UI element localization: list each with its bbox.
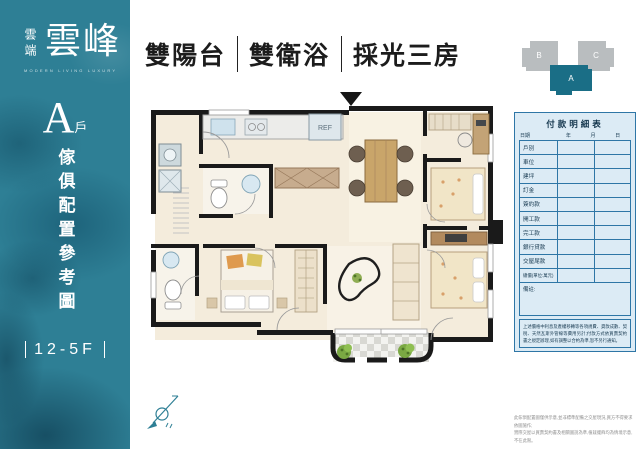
payment-row-label: 銀行貸款	[520, 240, 558, 253]
headline-item: 採光三房	[353, 36, 461, 72]
chair	[349, 146, 365, 162]
headline: 雙陽台雙衛浴採光三房	[145, 36, 461, 72]
plant-icon	[352, 273, 362, 283]
payment-row-label: 交屋尾款	[520, 255, 558, 268]
north-arrow-icon	[340, 92, 362, 106]
unit-letter: A	[43, 93, 75, 142]
keyplan-label-a: A	[568, 74, 574, 83]
refrigerator-label: REF	[318, 125, 332, 132]
pillow	[473, 174, 483, 214]
unit-caption-wrap: 傢俱配置參考圖	[0, 148, 130, 316]
desk-chair	[458, 133, 472, 147]
tv-icon	[445, 234, 467, 242]
chair	[397, 180, 413, 196]
payment-row: 建坪	[520, 169, 630, 183]
payment-row: 總價(單位:萬元)	[520, 269, 630, 283]
payment-table: 付款明細表 日期 年 月 日 戶別車位建坪訂金簽約款開工款完工款銀行貸款交屋尾款…	[514, 112, 636, 352]
payment-cell	[558, 198, 595, 211]
payment-row: 戶別	[520, 141, 630, 155]
brand-band: 雲端 雲峰 MODERN LIVING LUXURY A戶 傢俱配置參考圖 12…	[0, 0, 130, 449]
payment-cell	[558, 226, 595, 239]
pillow	[473, 258, 484, 278]
payment-cell	[595, 184, 631, 197]
payment-date-header: 日期 年 月 日	[520, 132, 630, 139]
payment-row-label: 簽約款	[520, 198, 558, 211]
payment-cell	[558, 269, 595, 282]
chair	[349, 180, 365, 196]
payment-row: 車位	[520, 155, 630, 169]
payment-row-label: 完工款	[520, 226, 558, 239]
nightstand	[277, 298, 287, 308]
floor-plan: REF	[143, 92, 507, 394]
keyplan-label-c: C	[593, 51, 599, 60]
payment-cell	[595, 169, 631, 182]
balcony-railing-gap-1	[355, 357, 367, 363]
pillow	[225, 296, 245, 309]
brand-logo: 雲端 雲峰	[22, 22, 121, 62]
footer-line-1: 此傢俱配置圖僅供示意,並非標準配備之交屋現況,買方不得要求依圖施作;	[514, 414, 636, 429]
compass-icon	[142, 390, 188, 436]
payment-cell	[558, 155, 595, 168]
payment-row-label: 開工款	[520, 212, 558, 225]
payment-row: 開工款	[520, 212, 630, 226]
poster-page: 雲端 雲峰 MODERN LIVING LUXURY A戶 傢俱配置參考圖 12…	[0, 0, 640, 449]
payment-remark: 備註:	[520, 283, 630, 315]
unit-title: A戶	[0, 92, 130, 143]
payment-cell	[595, 255, 631, 268]
headline-item: 雙衛浴	[249, 36, 342, 72]
payment-cell	[595, 155, 631, 168]
storage-cabinets	[275, 168, 339, 188]
footer-line-2: 實際交屋以買賣契約書及相關圖說為準,植栽擺飾均為情境示意,不在此限。	[514, 429, 636, 444]
cushion-yellow	[246, 253, 262, 267]
balcony-railing-gap-2	[387, 357, 399, 363]
payment-row-label: 建坪	[520, 169, 558, 182]
date-col-day: 日	[605, 132, 630, 139]
floor-range: 12-5F	[0, 341, 130, 359]
kitchen-sink	[211, 119, 235, 135]
payment-row: 銀行貸款	[520, 240, 630, 254]
date-label: 日期	[520, 132, 556, 139]
brand-name-large: 雲峰	[45, 22, 121, 62]
payment-row-label: 訂金	[520, 184, 558, 197]
footer-disclaimer: 此傢俱配置圖僅供示意,並非標準配備之交屋現況,買方不得要求依圖施作; 實際交屋以…	[514, 414, 636, 445]
keyplan-diagram: B C A	[512, 28, 638, 108]
keyplan-label-b: B	[536, 51, 541, 60]
unit-suffix: 戶	[74, 120, 87, 135]
chair	[397, 146, 413, 162]
payment-rows: 戶別車位建坪訂金簽約款開工款完工款銀行貸款交屋尾款總價(單位:萬元)備註:	[519, 140, 631, 316]
unit-caption: 傢俱配置參考圖	[53, 148, 78, 316]
payment-cell	[595, 212, 631, 225]
monitor-icon	[476, 120, 486, 126]
payment-row: 交屋尾款	[520, 255, 630, 269]
payment-cell	[595, 141, 631, 154]
payment-cell	[595, 198, 631, 211]
payment-cell	[595, 269, 631, 282]
dining-table	[365, 140, 397, 202]
payment-cell	[558, 169, 595, 182]
payment-row: 訂金	[520, 184, 630, 198]
headline-item: 雙陽台	[145, 36, 238, 72]
payment-row: 簽約款	[520, 198, 630, 212]
pillow	[249, 296, 269, 309]
brand-subtext: MODERN LIVING LUXURY	[24, 68, 114, 73]
kitchen: REF	[203, 114, 343, 140]
payment-row: 完工款	[520, 226, 630, 240]
basin-icon	[163, 252, 179, 268]
payment-cell	[595, 240, 631, 253]
bedroom-2	[427, 168, 485, 222]
basin-icon	[242, 175, 260, 193]
washer-icon	[164, 149, 176, 161]
payment-row-label: 車位	[520, 155, 558, 168]
payment-row-label: 總價(單位:萬元)	[520, 269, 558, 282]
pillow	[473, 282, 484, 302]
nightstand	[207, 298, 217, 308]
payment-cell	[558, 141, 595, 154]
payment-cell	[595, 226, 631, 239]
cushion-orange	[226, 254, 244, 269]
payment-cell	[558, 184, 595, 197]
toilet-icon	[165, 280, 181, 300]
toilet-icon	[211, 188, 227, 208]
brand-name-small: 雲端	[22, 28, 39, 60]
date-col-year: 年	[556, 132, 581, 139]
payment-note: 上述價格中利息及產權移轉等各項規費、貸款成數、契稅、天然瓦斯外管線等費用另計;付…	[519, 319, 631, 348]
payment-cell	[558, 240, 595, 253]
payment-table-title: 付款明細表	[519, 118, 631, 130]
payment-cell	[558, 255, 595, 268]
date-col-month: 月	[581, 132, 606, 139]
payment-cell	[558, 212, 595, 225]
payment-row-label: 戶別	[520, 141, 558, 154]
